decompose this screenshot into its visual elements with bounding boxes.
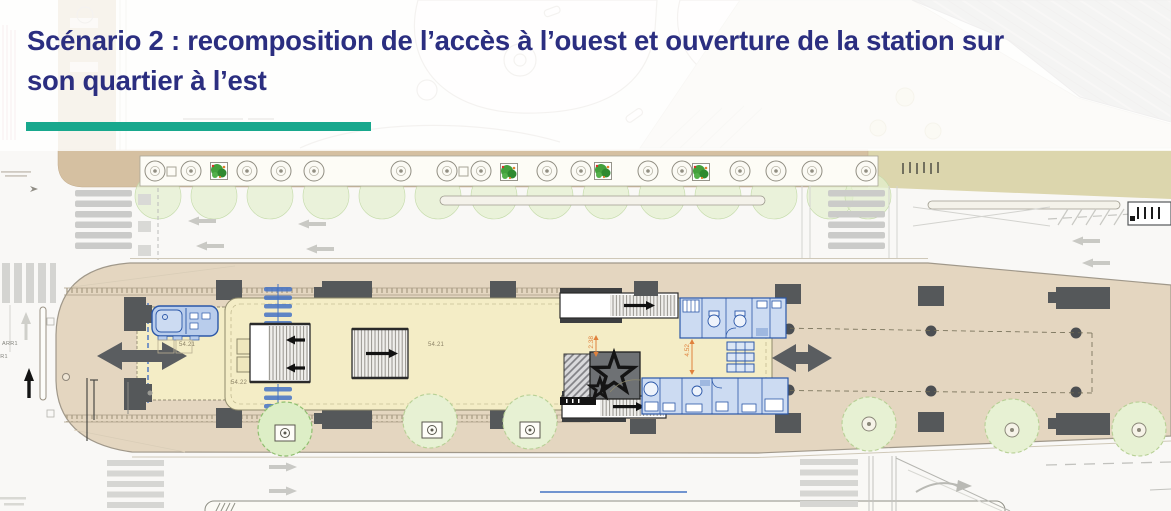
- page-title-line2: son quartier à l’est: [27, 61, 267, 101]
- turn-arrow: [916, 483, 960, 492]
- direction-arrow: [24, 368, 34, 398]
- escalator-center: [352, 329, 408, 378]
- service-rooms-south: [642, 378, 788, 414]
- bike-rack-north: [264, 284, 292, 328]
- crosswalk-west: [75, 190, 132, 249]
- level-label-west: 54.21: [179, 342, 195, 348]
- level-label-lower: 54.22: [231, 380, 247, 386]
- lane-arrow-icons: [188, 217, 1110, 268]
- service-rooms-north: [680, 298, 786, 338]
- direction-arrow-ghost: [21, 312, 31, 340]
- dimension-label-east: 4.52: [684, 344, 691, 357]
- bus-stop-label-2: ARR1: [0, 354, 8, 360]
- crosswalk-southwest-vertical: [2, 263, 56, 303]
- artwork-star-icon: [560, 352, 640, 405]
- level-label-hall: 54.21: [428, 342, 444, 348]
- parking-band: [866, 150, 1171, 199]
- crosswalk-south-right: [800, 459, 858, 507]
- escalator-west: [250, 324, 310, 382]
- lane-separator-island-east: [928, 201, 1120, 209]
- lane-separator-island: [440, 196, 765, 205]
- zebra-hatch: [1058, 209, 1138, 225]
- north-street: [1, 150, 1171, 268]
- bus-shelter-icon: [1128, 202, 1171, 225]
- south-platform-outline: [205, 501, 1005, 511]
- bus-stop-label-1: ARR1: [2, 341, 18, 347]
- bus-bay-marker: [40, 307, 46, 400]
- lane-arrow-icons-south: [269, 463, 297, 496]
- page-title-line1: Scénario 2 : recomposition de l’accès à …: [27, 21, 1004, 61]
- dimension-label-north: 2.38: [588, 336, 595, 349]
- title-underline: [26, 122, 371, 131]
- slide: Scénario 2 : recomposition de l’accès à …: [0, 0, 1171, 511]
- crosswalk-south-left: [107, 460, 164, 508]
- bench-row: [727, 342, 754, 372]
